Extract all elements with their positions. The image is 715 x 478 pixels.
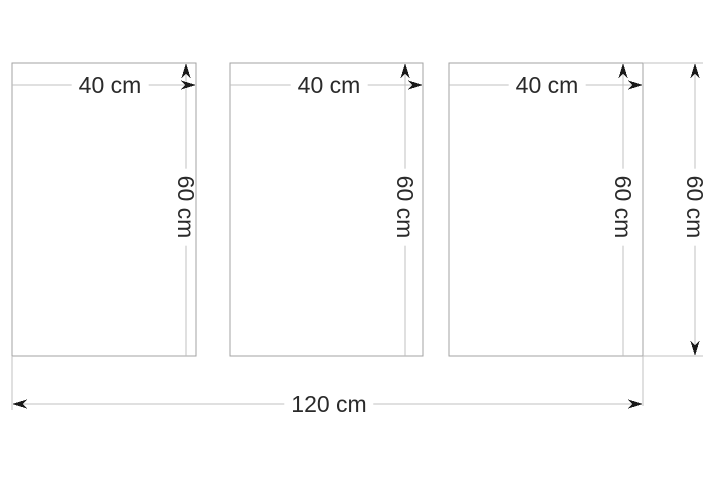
triptych-dimension-diagram: 40 cm 40 cm 40 cm 60 cm 60 cm 60 cm 60 c… bbox=[0, 0, 715, 478]
panel-3-width-label: 40 cm bbox=[509, 76, 586, 94]
panel-1-height-label: 60 cm bbox=[177, 169, 195, 246]
panel-1-width-label: 40 cm bbox=[72, 76, 149, 94]
panel-2-width-label: 40 cm bbox=[291, 76, 368, 94]
panel-3-height-label: 60 cm bbox=[614, 169, 632, 246]
panel-2-height-label: 60 cm bbox=[396, 169, 414, 246]
overall-width-label: 120 cm bbox=[284, 395, 373, 413]
overall-height-label: 60 cm bbox=[686, 169, 704, 246]
panel-1 bbox=[12, 63, 196, 356]
